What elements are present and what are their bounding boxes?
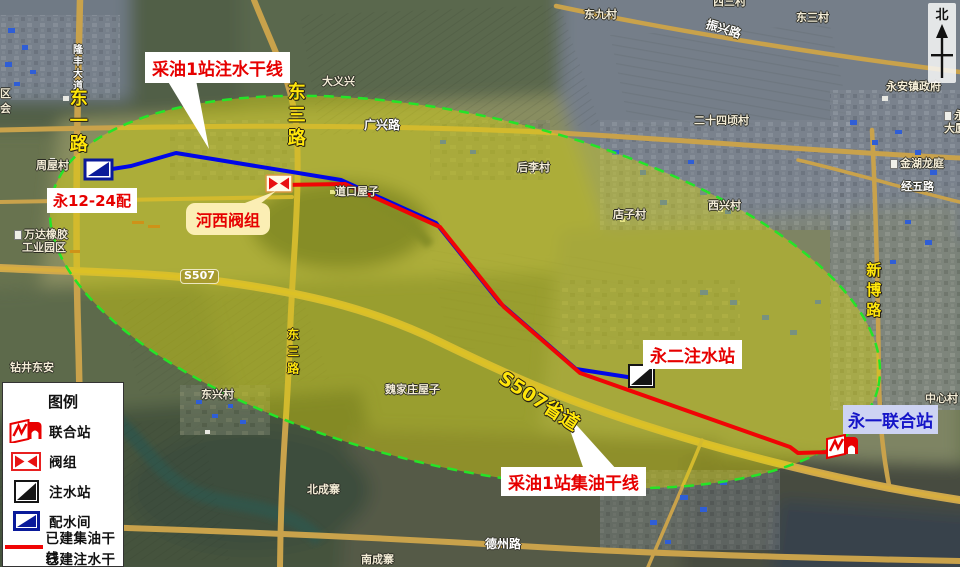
legend-panel: 图例 联合站 阀组 <box>2 382 124 567</box>
legend-row: 已建注水干线 <box>3 557 123 567</box>
legend-label: 已建注水干线 <box>45 548 123 567</box>
callout-yong-12-24: 永12-24配 <box>47 188 137 213</box>
legend-label: 注水站 <box>49 481 91 501</box>
callout-yong2-injection: 永二注水站 <box>643 340 742 369</box>
valve-group-icon <box>266 175 292 192</box>
satellite-basemap <box>0 0 960 567</box>
legend-row: 联合站 <box>3 416 123 446</box>
valve-group-icon <box>3 452 49 471</box>
callout-gathering-main: 采油1站集油干线 <box>501 467 646 496</box>
north-arrow: 北 <box>928 3 956 83</box>
oil-line-swatch <box>3 545 45 549</box>
injection-station-icon <box>3 480 49 503</box>
legend-row: 阀组 <box>3 446 123 476</box>
water-distribution-icon <box>3 511 49 531</box>
legend-row: 注水站 <box>3 476 123 506</box>
legend-label: 阀组 <box>49 451 77 471</box>
callout-hexi-valve: 河西阀组 <box>186 203 270 235</box>
callout-injection-main: 采油1站注水干线 <box>145 52 290 83</box>
north-label: 北 <box>935 4 948 23</box>
water-distribution-icon <box>85 160 112 179</box>
callout-yong1-joint: 永一联合站 <box>843 405 938 434</box>
oilfield-map: 隆丰大道东一路东三路东三路新博路S507省道S507广兴路振兴路经五路德州路周屋… <box>0 0 960 567</box>
joint-station-icon <box>3 419 49 443</box>
north-arrow-icon <box>930 23 954 81</box>
legend-title: 图例 <box>3 391 123 412</box>
legend-label: 联合站 <box>49 421 91 441</box>
